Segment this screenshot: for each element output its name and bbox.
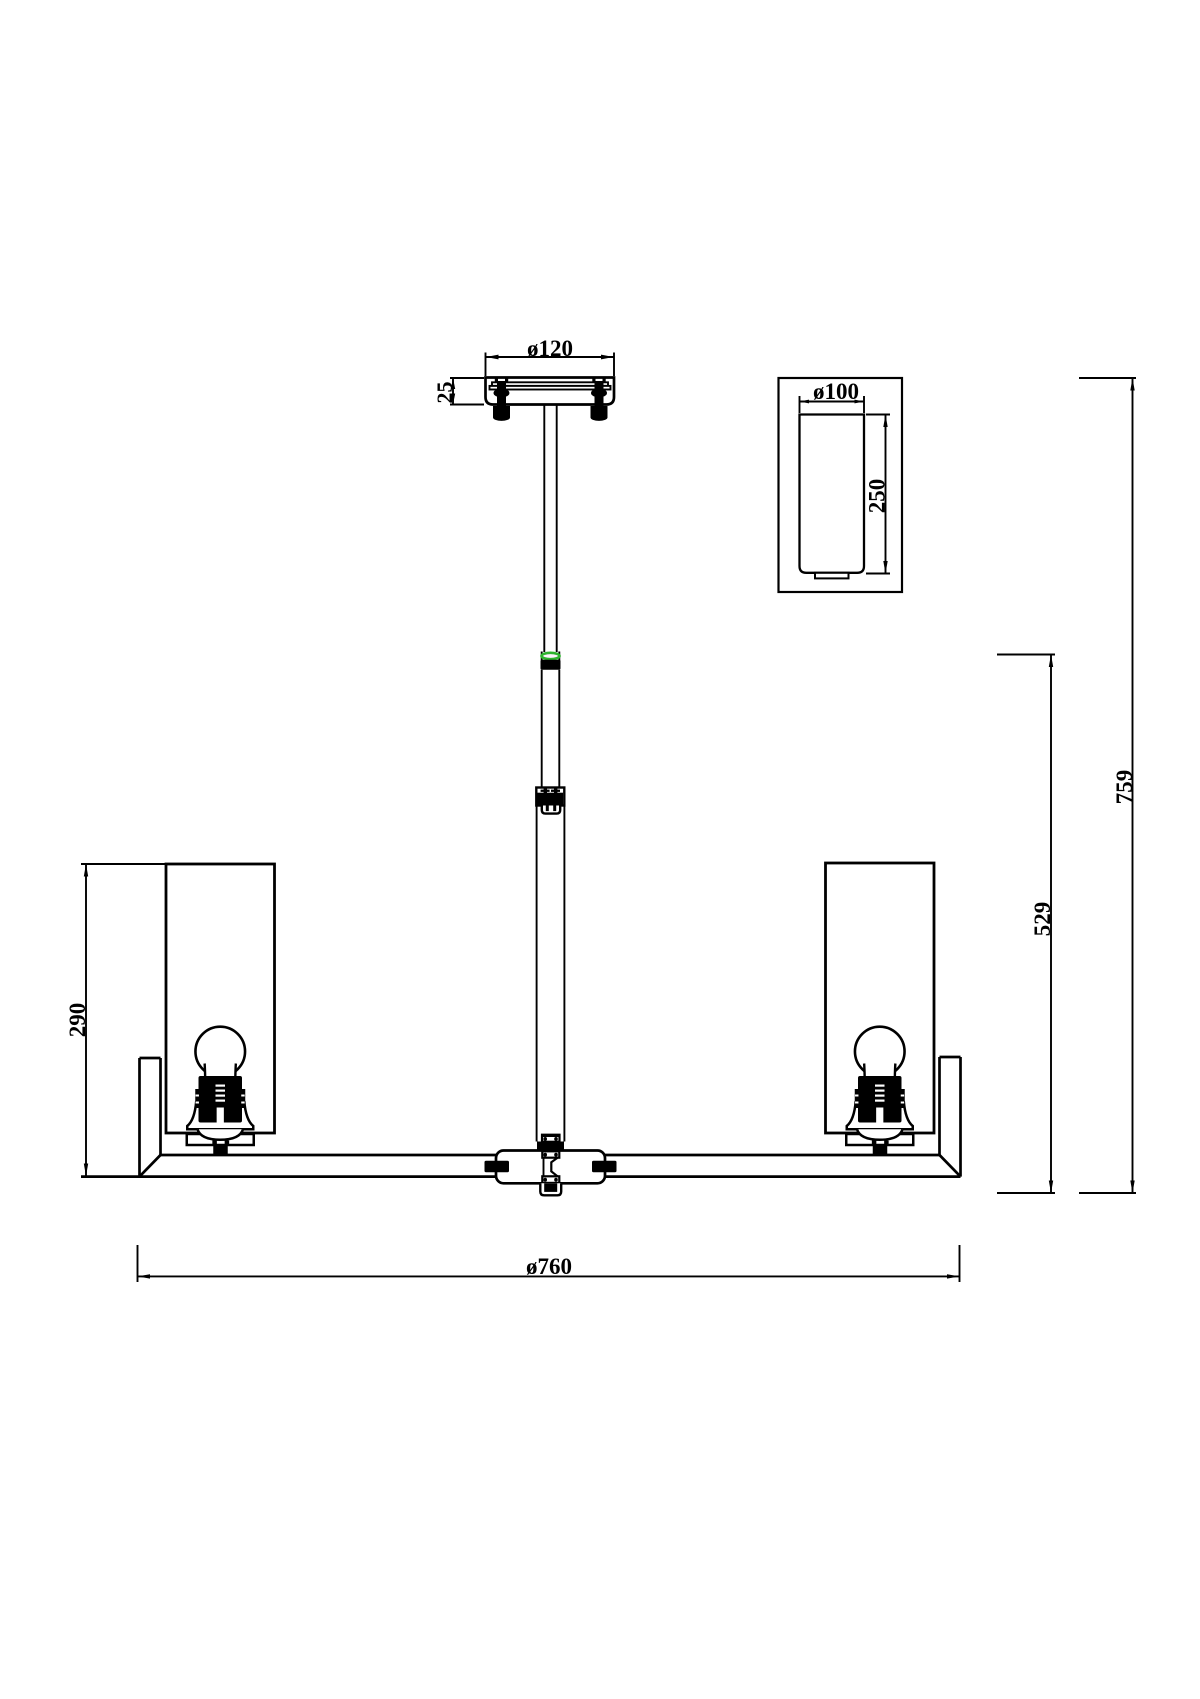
svg-text:25: 25 <box>432 382 457 404</box>
svg-text:250: 250 <box>865 479 890 514</box>
svg-text:ø120: ø120 <box>527 336 573 361</box>
svg-text:290: 290 <box>65 1003 90 1038</box>
svg-text:529: 529 <box>1030 902 1055 937</box>
svg-text:759: 759 <box>1112 770 1137 805</box>
svg-text:ø760: ø760 <box>526 1254 572 1279</box>
svg-text:ø100: ø100 <box>813 379 859 404</box>
